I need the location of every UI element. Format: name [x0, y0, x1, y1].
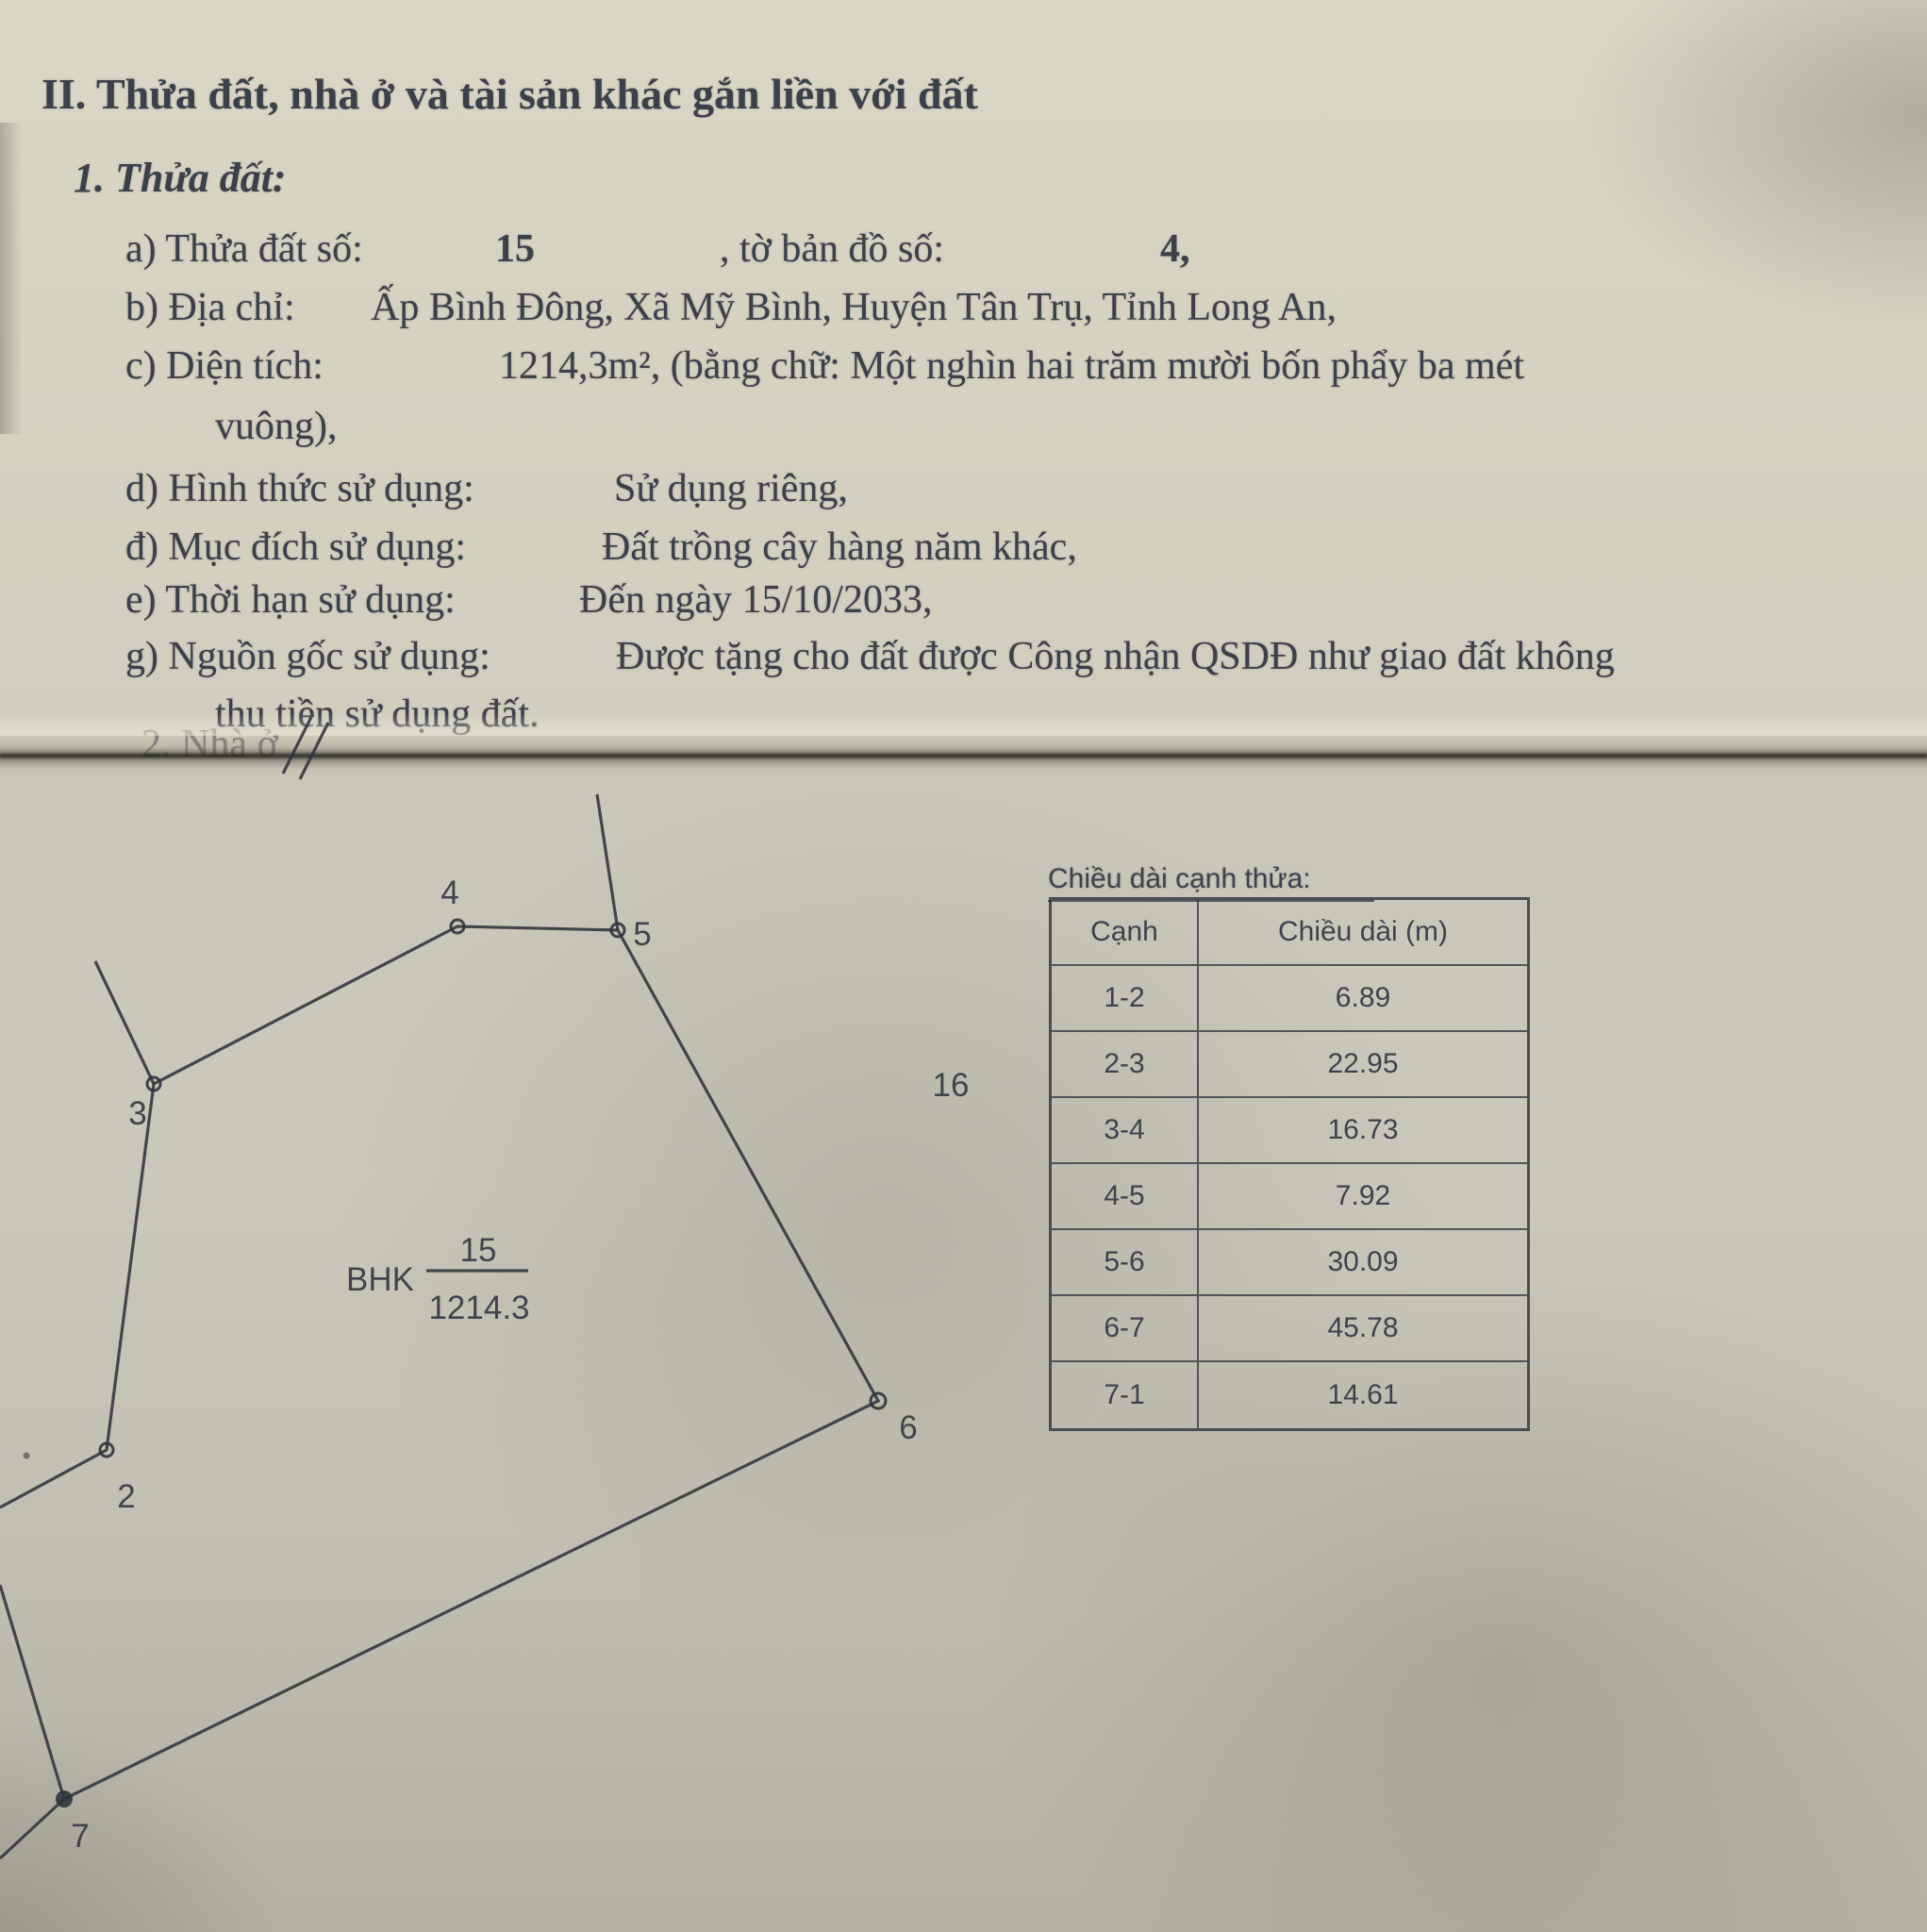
document-photo: II. Thửa đất, nhà ở và tài sản khác gắn … — [0, 0, 1927, 1932]
edge-column-header: Cạnh — [1052, 900, 1199, 966]
parcel-area-annotation: 1214.3 — [428, 1290, 529, 1326]
parcel-number-annotation: 15 — [460, 1232, 497, 1269]
table-row-edge: 2-3 — [1052, 1032, 1199, 1098]
table-row-edge: 4-5 — [1052, 1164, 1199, 1230]
ink-speck — [24, 1453, 30, 1459]
boundary-spur-at-5 — [597, 794, 618, 930]
table-row-length: 16.73 — [1199, 1098, 1527, 1164]
cadastral-diagram: 2 3 4 5 6 7 16 BHK 15 1214.3 — [0, 0, 1927, 1932]
vertex-4-label: 4 — [440, 874, 458, 911]
boundary-spur-at-7 — [0, 1799, 64, 1858]
table-row-length: 7.92 — [1199, 1164, 1527, 1230]
edge-length-table: Cạnh Chiều dài (m) 1-2 6.89 2-3 22.95 3-… — [1049, 897, 1530, 1431]
vertex-2-label: 2 — [117, 1478, 135, 1515]
table-row-length: 30.09 — [1199, 1230, 1527, 1296]
table-row-edge: 1-2 — [1052, 966, 1199, 1032]
vertex-7-label: 7 — [71, 1818, 89, 1855]
table-row-edge: 5-6 — [1052, 1230, 1199, 1296]
vertex-6-label: 6 — [899, 1409, 917, 1446]
table-row-length: 45.78 — [1199, 1296, 1527, 1362]
vertex-5-label: 5 — [633, 916, 651, 953]
table-row-edge: 6-7 — [1052, 1296, 1199, 1362]
boundary-spur-at-3 — [95, 961, 154, 1084]
table-row-length: 6.89 — [1199, 966, 1527, 1032]
table-row-length: 14.61 — [1199, 1362, 1527, 1428]
edge-table-title: Chiều dài cạnh thửa: — [1048, 863, 1374, 902]
table-row-edge: 7-1 — [1052, 1362, 1199, 1428]
parcel-boundary — [0, 926, 878, 1799]
length-column-header: Chiều dài (m) — [1199, 900, 1527, 966]
parcel-landuse-code: BHK — [346, 1261, 414, 1298]
vertex-3-label: 3 — [128, 1095, 146, 1132]
table-row-length: 22.95 — [1199, 1032, 1527, 1098]
adjacent-parcel-label: 16 — [933, 1067, 970, 1104]
vertex-7-marker — [56, 1790, 73, 1807]
table-row-edge: 3-4 — [1052, 1098, 1199, 1164]
